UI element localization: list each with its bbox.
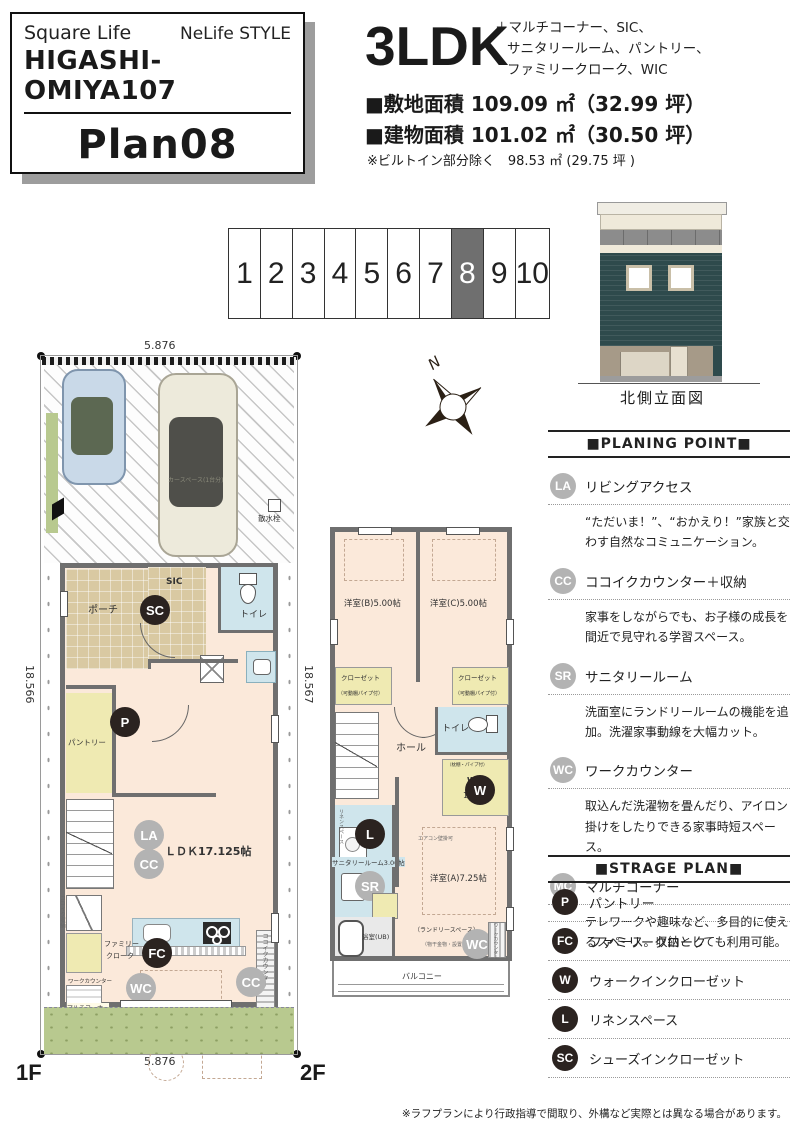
lot-4: 4 (324, 229, 356, 318)
closet-c: クローゼット （可動棚パイプ付） (452, 667, 509, 705)
wall (116, 793, 216, 797)
planning-item-desc: “ただいま！”、“おかえり！”家族と交わす自然なコミュニケーション。 (585, 512, 790, 553)
window (506, 907, 514, 931)
storage-item-label: ウォークインクローゼット (589, 971, 745, 990)
family-cloak (66, 933, 102, 973)
planning-item-title: リビングアクセス (585, 476, 692, 496)
feature-line: サニタリールーム、パントリー、 (507, 39, 710, 60)
toilet-icon (240, 584, 256, 604)
porch (66, 569, 151, 669)
floor1-label: 1F (16, 1060, 42, 1086)
pantry-badge: P (552, 889, 578, 915)
fc-badge: FC (142, 938, 172, 968)
linen-badge: L (552, 1006, 578, 1032)
floor1-dim-top: 5.876 (144, 339, 176, 352)
site-area: ■敷地面積 109.09 ㎡（32.99 坪） (365, 88, 705, 117)
feature-line: ファミリークローク、WIC (507, 60, 710, 81)
bath-label: 浴室(UB) (362, 931, 389, 941)
lot-strip: 1 2 3 4 5 6 7 8 9 10 (228, 228, 550, 319)
wc-badge-1f: WC (126, 973, 156, 1003)
work-counter-2f-label: ワークカウンター (492, 923, 498, 959)
storage-item-label: リネンスペース (589, 1010, 678, 1029)
wall (148, 659, 238, 663)
hand-basin (246, 651, 276, 683)
window (358, 527, 392, 535)
porch-label: ポーチ (88, 601, 118, 616)
wc-badge: WC (550, 757, 576, 783)
planning-item-desc: 家事をしながらでも、お子様の成長を間近で見守れる学習スペース。 (585, 607, 790, 648)
cc-badge: CC (550, 568, 576, 594)
water-tap-icon (268, 499, 281, 512)
bed-outline (432, 539, 496, 581)
toilet-1f-label: トイレ (240, 607, 267, 620)
wic-note: （枕棚・パイプ付） (447, 762, 488, 768)
elevation-teal-strip (713, 346, 722, 376)
hall-2f-label: ホール (396, 739, 426, 754)
ldk-text: ＬＤＫ17.125帖 (165, 843, 251, 859)
elevation-band-cream (600, 214, 722, 230)
feature-line: ＋マルチコーナー、SIC、 (495, 18, 710, 39)
kokoiku-storage (66, 895, 102, 931)
work-counter-label: ワークカウンター (68, 977, 112, 985)
storage-item: SC シューズインクローゼット (548, 1039, 790, 1078)
window (446, 527, 480, 535)
closet-note: （可動棚パイプ付） (455, 690, 500, 697)
car-icon (62, 369, 126, 485)
window (506, 827, 514, 851)
la-badge: LA (550, 473, 576, 499)
sr-badge: SR (550, 663, 576, 689)
sink-icon (253, 659, 271, 675)
window (60, 591, 68, 617)
linen-label: リネンスペース (338, 809, 345, 844)
balcony-label: バルコニー (402, 971, 442, 982)
kokoiku-storage-label: ココイク収納 (58, 895, 66, 928)
bedroom-c-label: 洋室(C)5.00帖 (430, 597, 487, 609)
planning-item-desc: 洗面室にランドリールームの機能を追加。洗濯家事動線を大幅カット。 (585, 702, 790, 743)
cc-badge-left: CC (134, 849, 164, 879)
closet-note: （可動棚パイプ付） (338, 690, 383, 697)
car-roof (169, 417, 223, 507)
elevation-band-gray (600, 230, 722, 245)
disclaimer: ※ラフプランにより行政指導で間取り、外構など実際とは異なる場合があります。 (402, 1106, 787, 1121)
storage-item-label: ファミリークローク (589, 932, 706, 951)
elevation-wall-teal (600, 253, 722, 346)
plan-number: Plan08 (24, 122, 291, 168)
garden (44, 1007, 294, 1054)
burner (212, 935, 222, 945)
vanity-icon (372, 893, 398, 919)
elevation-caption: 北側立面図 (620, 387, 705, 408)
plan-sheet: Square Life NeLife STYLE HIGASHI-OMIYA10… (0, 0, 795, 1139)
sanitary-label: サニタリールーム3.00帖 (332, 857, 405, 867)
planning-item-title: ワークカウンター (585, 760, 693, 780)
floor2-plan: 洋室(B)5.00帖 洋室(C)5.00帖 クローゼット （可動棚パイプ付） ク… (330, 527, 512, 1039)
closet-b: クローゼット （可動棚パイプ付） (335, 667, 392, 705)
elevation-entry-door (670, 346, 688, 378)
bed-outline (344, 539, 404, 581)
setback-dots-right (283, 565, 296, 1005)
wall (66, 685, 116, 689)
wic-badge: W (552, 967, 578, 993)
lot-9: 9 (483, 229, 515, 318)
wic-badge: W (465, 775, 495, 805)
floor1-plan: 5.876 18.566 18.567 5.876 カースペース(1台分) 散水… (40, 355, 298, 1077)
lot-5: 5 (355, 229, 387, 318)
compass-icon: N (412, 352, 494, 447)
window (506, 619, 514, 645)
elevation-band-cream2 (600, 245, 722, 253)
feature-list: ＋マルチコーナー、SIC、 サニタリールーム、パントリー、 ファミリークローク、… (495, 18, 710, 81)
bed-outline (422, 827, 496, 915)
bathtub-icon (338, 920, 364, 957)
planning-item-header: CC ココイクカウンター＋収納 (548, 568, 790, 600)
header-divider (24, 112, 291, 114)
pantry-label: パントリー (68, 737, 106, 748)
linen-badge: L (355, 819, 385, 849)
storage-item-label: シューズインクローゼット (589, 1049, 744, 1068)
closet-label: クローゼット (458, 672, 497, 682)
floor1-dim-right: 18.567 (302, 665, 315, 704)
elevation-plinth (600, 376, 722, 382)
cc-badge-right: CC (236, 967, 266, 997)
storage-item: W ウォークインクローゼット (548, 961, 790, 1000)
lot-8-selected: 8 (451, 229, 483, 318)
family-cloak-label2: クローク (106, 951, 134, 961)
sic-label: SIC (166, 577, 182, 587)
la-badge: LA (134, 820, 164, 850)
planning-item-title: ココイクカウンター＋収納 (585, 571, 747, 591)
style-name: NeLife STYLE (180, 24, 291, 44)
planning-item-desc: 取込んだ洗濯物を畳んだり、アイロン掛けをしたりできる家事時短スペース。 (585, 796, 790, 857)
window (330, 619, 338, 645)
elevation-figure (600, 200, 722, 382)
sic-badge: SC (140, 595, 170, 625)
closet-label: クローゼット (341, 672, 380, 682)
elevation-garage-door (620, 352, 669, 376)
toilet-2f-label: トイレ (442, 721, 469, 734)
storage-plan-title: ■STRAGE PLAN■ (548, 855, 790, 883)
storage-item-label: パントリー (589, 893, 655, 912)
pantry-badge: P (110, 707, 140, 737)
stairs-diagonal (66, 799, 112, 887)
wall (416, 532, 420, 682)
floor2-label: 2F (300, 1060, 326, 1086)
toilet-icon (468, 717, 488, 732)
planning-item-title: サニタリールーム (585, 666, 693, 686)
lot-2: 2 (260, 229, 292, 318)
lot-3: 3 (292, 229, 324, 318)
lot-1: 1 (229, 229, 260, 318)
layout-type: 3LDK (365, 14, 509, 78)
storage-plan-panel: ■STRAGE PLAN■ P パントリー FC ファミリークローク W ウォー… (548, 855, 790, 1078)
sic-badge: SC (552, 1045, 578, 1071)
toilet-1f (218, 567, 273, 633)
lot-10: 10 (515, 229, 549, 318)
window (271, 913, 279, 943)
lot-7: 7 (419, 229, 451, 318)
builtin-note: ※ビルトイン部分除く 98.53 ㎡ (29.75 坪 ) (367, 150, 635, 169)
planning-item-header: SR サニタリールーム (548, 663, 790, 695)
brand-name: Square Life (24, 22, 131, 44)
fence-hatch (42, 357, 296, 365)
car-roof (71, 397, 113, 455)
balcony-rail (338, 984, 504, 992)
elevation-window (626, 265, 652, 291)
svg-text:N: N (425, 353, 445, 374)
wall (395, 777, 399, 887)
family-cloak-badge: FC (552, 928, 578, 954)
building-area: ■建物面積 101.02 ㎡（30.50 坪） (365, 119, 705, 148)
elevation-ground-line (578, 383, 760, 384)
storage-item: L リネンスペース (548, 1000, 790, 1039)
header-card: Square Life NeLife STYLE HIGASHI-OMIYA10… (10, 12, 305, 174)
planning-point-title: ■PLANING POINT■ (548, 430, 790, 458)
water-tap-label: 散水栓 (258, 513, 281, 524)
setback-dots-left (42, 565, 55, 1005)
car-icon: カースペース(1台分) (158, 373, 238, 557)
wall (112, 685, 116, 797)
storage-item: P パントリー (548, 883, 790, 922)
project-name: HIGASHI-OMIYA107 (24, 46, 291, 106)
window (271, 715, 279, 743)
car-space-label: カースペース(1台分) (168, 475, 223, 484)
stove-icon (203, 922, 231, 944)
elevation-window (668, 265, 694, 291)
planning-item-header: WC ワークカウンター (548, 757, 790, 789)
stairs-diagonal (335, 712, 377, 797)
elevation-lower (600, 346, 722, 376)
storage-item: FC ファミリークローク (548, 922, 790, 961)
floor1-dim-left: 18.566 (23, 665, 36, 704)
lot-6: 6 (387, 229, 419, 318)
bedroom-b-label: 洋室(B)5.00帖 (344, 597, 401, 609)
family-cloak-label1: ファミリー (104, 939, 139, 949)
planning-item-header: LA リビングアクセス (548, 473, 790, 505)
